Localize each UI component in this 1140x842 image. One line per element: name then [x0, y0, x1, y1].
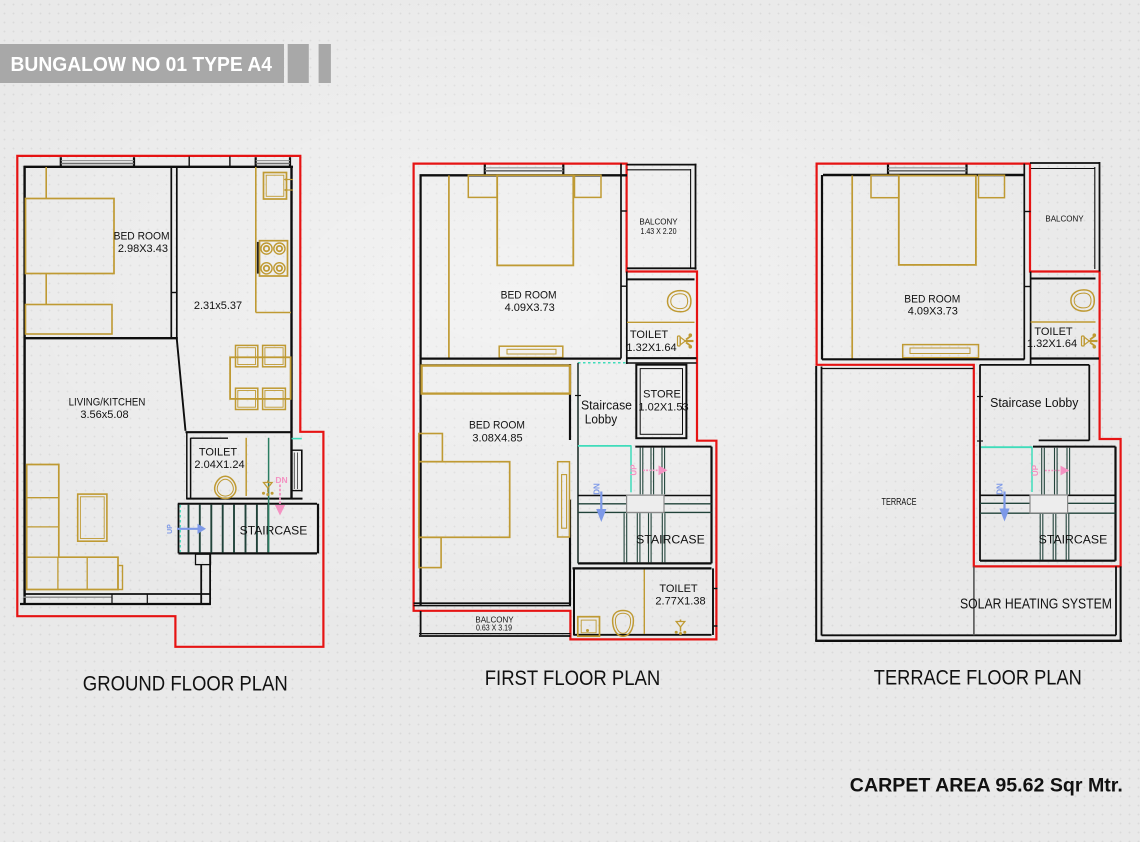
svg-text:4.09X3.73: 4.09X3.73: [505, 302, 555, 314]
svg-text:TOILET: TOILET: [659, 583, 698, 595]
svg-text:DN: DN: [275, 475, 287, 485]
svg-text:3.56x5.08: 3.56x5.08: [80, 409, 128, 421]
svg-text:BALCONY: BALCONY: [639, 218, 678, 227]
svg-text:STORE: STORE: [643, 388, 681, 400]
svg-text:UP: UP: [167, 524, 174, 534]
svg-text:BALCONY: BALCONY: [1045, 214, 1084, 223]
svg-text:TOILET: TOILET: [1034, 326, 1073, 338]
svg-text:DN: DN: [593, 483, 602, 495]
svg-text:BED ROOM: BED ROOM: [501, 290, 557, 302]
svg-text:DN: DN: [996, 483, 1005, 495]
svg-text:STAIRCASE: STAIRCASE: [636, 533, 705, 547]
svg-text:2.04X1.24: 2.04X1.24: [194, 459, 244, 471]
svg-text:CARPET AREA 95.62 Sqr Mtr.: CARPET AREA 95.62 Sqr Mtr.: [850, 775, 1123, 797]
svg-text:1.43 X 2.20: 1.43 X 2.20: [641, 227, 677, 236]
svg-text:2.77X1.38: 2.77X1.38: [655, 595, 705, 607]
svg-text:Staircase: Staircase: [581, 397, 632, 412]
svg-text:TOILET: TOILET: [199, 447, 238, 459]
svg-text:1.32X1.64: 1.32X1.64: [626, 342, 676, 354]
svg-text:UP: UP: [630, 464, 639, 476]
svg-text:0.63 X 3.19: 0.63 X 3.19: [476, 624, 512, 633]
svg-text:UP: UP: [1031, 464, 1040, 476]
svg-text:BUNGALOW NO 01 TYPE A4: BUNGALOW NO 01 TYPE A4: [11, 54, 273, 76]
svg-text:SOLAR HEATING SYSTEM: SOLAR HEATING SYSTEM: [960, 597, 1112, 613]
svg-text:STAIRCASE: STAIRCASE: [1039, 533, 1108, 547]
svg-text:GROUND FLOOR PLAN: GROUND FLOOR PLAN: [83, 673, 288, 696]
svg-text:Lobby: Lobby: [585, 412, 618, 427]
svg-text:STAIRCASE: STAIRCASE: [240, 523, 308, 537]
svg-text:1.32X1.64: 1.32X1.64: [1027, 338, 1077, 350]
svg-text:4.09X3.73: 4.09X3.73: [908, 306, 958, 318]
svg-text:BED ROOM: BED ROOM: [469, 419, 525, 431]
svg-text:2.98X3.43: 2.98X3.43: [118, 243, 168, 255]
svg-text:2.31x5.37: 2.31x5.37: [194, 300, 242, 312]
svg-text:TOILET: TOILET: [630, 329, 669, 341]
svg-text:TERRACE FLOOR PLAN: TERRACE FLOOR PLAN: [874, 667, 1082, 690]
svg-text:3.08X4.85: 3.08X4.85: [472, 432, 522, 444]
svg-text:1.02X1.53: 1.02X1.53: [638, 402, 688, 414]
svg-text:Staircase Lobby: Staircase Lobby: [990, 395, 1079, 410]
svg-text:BED ROOM: BED ROOM: [904, 293, 960, 305]
svg-text:LIVING/KITCHEN: LIVING/KITCHEN: [69, 397, 146, 409]
svg-text:TERRACE: TERRACE: [882, 497, 917, 508]
svg-text:FIRST FLOOR PLAN: FIRST FLOOR PLAN: [485, 667, 661, 690]
svg-text:BED ROOM: BED ROOM: [114, 231, 170, 243]
